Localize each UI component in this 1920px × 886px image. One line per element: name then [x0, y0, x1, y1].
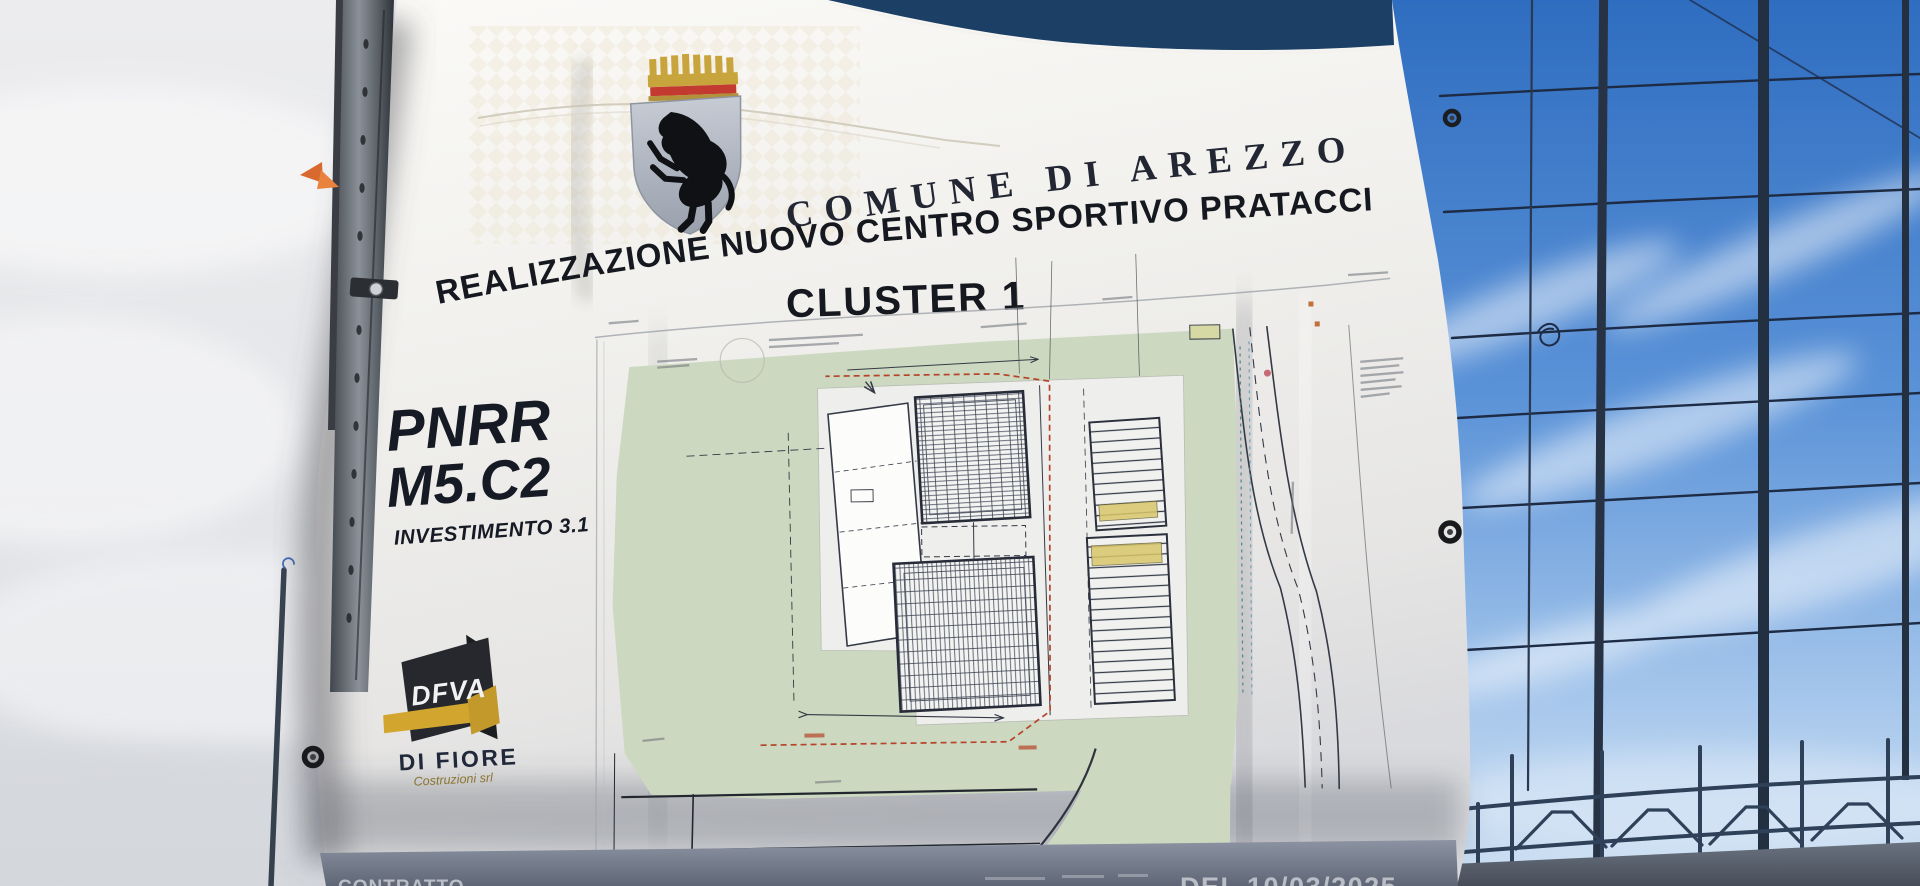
pole-clamp [350, 277, 399, 299]
pnrr-mission-label: M5.C2 [384, 445, 553, 519]
construction-banner-photo: COMUNE DI AREZZO REALIZZAZIONE NUOVO CEN… [0, 0, 1920, 886]
fence-post [1758, 0, 1769, 886]
footer-contract-label: CONTRATTO [338, 877, 465, 886]
footer-date-label: DEL 10/03/2025 [1180, 872, 1397, 886]
grommet-icon [305, 749, 322, 766]
grommet-icon [1445, 111, 1459, 125]
grommet-icon [1441, 523, 1459, 541]
fence-post [1902, 0, 1909, 780]
banner: COMUNE DI AREZZO REALIZZAZIONE NUOVO CEN… [305, 0, 1471, 886]
